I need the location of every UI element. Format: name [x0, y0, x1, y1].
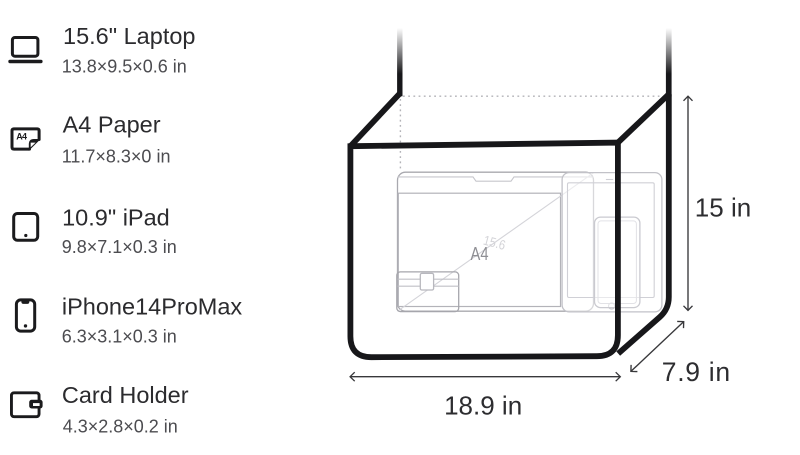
svg-text:10.9" iPad: 10.9" iPad	[62, 205, 170, 231]
svg-text:4.3×2.8×0.2 in: 4.3×2.8×0.2 in	[63, 417, 178, 437]
svg-text:9.8×7.1×0.3 in: 9.8×7.1×0.3 in	[62, 237, 177, 257]
svg-text:15 in: 15 in	[695, 192, 751, 222]
svg-text:iPhone14ProMax: iPhone14ProMax	[62, 294, 243, 320]
svg-text:7.9 in: 7.9 in	[662, 357, 731, 387]
svg-text:6.3×3.1×0.3 in: 6.3×3.1×0.3 in	[62, 327, 177, 347]
svg-text:Card Holder: Card Holder	[62, 382, 189, 408]
svg-text:11.7×8.3×0 in: 11.7×8.3×0 in	[62, 147, 171, 167]
svg-text:18.9 in: 18.9 in	[444, 390, 522, 420]
svg-text:A4 Paper: A4 Paper	[63, 111, 161, 137]
svg-text:13.8×9.5×0.6 in: 13.8×9.5×0.6 in	[62, 56, 187, 76]
svg-text:15.6" Laptop: 15.6" Laptop	[63, 23, 196, 49]
svg-text:A4: A4	[16, 132, 27, 142]
